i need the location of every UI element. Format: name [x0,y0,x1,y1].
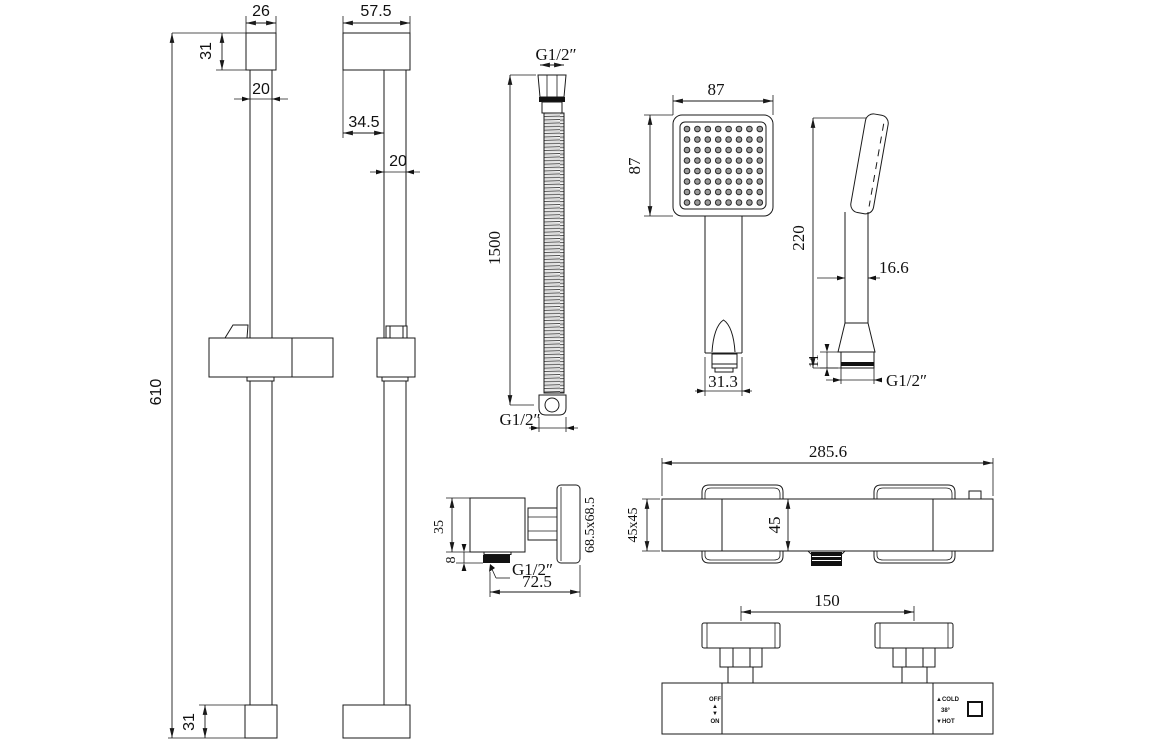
dim-label-handle-width: 31.3 [708,372,738,391]
dim-label-grip-width: 16.6 [879,258,909,277]
rail-top-cap-front [246,33,276,70]
nozzle-dot [736,168,742,174]
handle-taper-side [838,323,875,352]
dim-label-elbow-depth: 72.5 [522,572,552,591]
slide-rail-front-view: 26 31 20 610 31 [148,3,333,738]
dim-label-elbow-nut-height: 8 [444,557,459,564]
handset-head-side [849,113,889,215]
nozzle-dot [736,126,742,132]
nozzle-dot [726,126,732,132]
temp-hot-label: ▼HOT [936,719,955,725]
nozzle-dot [715,137,721,143]
hose-top-collar [542,102,562,113]
nozzle-dot [715,189,721,195]
nozzle-dot [726,147,732,153]
elbow-body [470,498,525,552]
flow-down-arrow: ▼ [712,711,718,717]
dim-label-rail-wall-offset: 34.5 [348,114,379,131]
flow-off-label: OFF [709,697,721,703]
dim-label-face-width: 87 [708,80,726,99]
valve-right-handle-top-outline [874,485,955,499]
slider-lever-front [225,325,248,338]
dim-label-hose-bottom-thread: G1/2″ [499,410,540,429]
dim-label-rail-bottom-cap-height: 31 [181,713,198,731]
handset-front-view: 87 87 31.3 [625,80,773,396]
valve-left-handle-top-outline [702,485,783,499]
valve-top-view: 285.6 45x45 45 [626,442,993,566]
nozzle-dot [757,137,763,143]
nozzle-dot [757,158,763,164]
dim-label-valve-body-depth: 45 [765,517,784,534]
nozzle-dot [684,147,690,153]
shower-hose-view: G1/2″ 1500 G1/2″ [485,45,578,432]
valve-right-handle-front [875,623,953,648]
dim-label-face-height: 87 [625,157,644,175]
nozzle-dot [747,158,753,164]
nozzle-dot [726,200,732,206]
nozzle-dot [747,137,753,143]
nozzle-dot [705,179,711,185]
dim-label-rail-total-height: 610 [148,379,165,406]
nozzle-dot [736,200,742,206]
temp-38-label: 38° [941,708,951,714]
nozzle-dot [736,189,742,195]
slide-rail-side-view: 57.5 34.5 20 [343,3,420,738]
elbow-wall-plate [557,485,580,563]
nozzle-dot [695,147,701,153]
nozzle-dot [757,200,763,206]
dim-label-rail-cap-height: 31 [198,42,215,60]
hose-top-nut [538,75,566,97]
dim-label-handset-thread: G1/2″ [886,371,927,390]
nozzle-dot [705,147,711,153]
nozzle-dot [695,179,701,185]
hose-corrugation [544,113,564,393]
nozzle-dot [726,189,732,195]
nozzle-dot [695,126,701,132]
nozzle-dot [684,179,690,185]
dim-label-elbow-body-height: 35 [432,520,447,534]
nozzle-dot [757,179,763,185]
nozzle-dot [747,200,753,206]
nozzle-dot [684,168,690,174]
nozzle-dot [695,189,701,195]
nozzle-dot [715,168,721,174]
nozzle-dot [684,200,690,206]
valve-right-inlet-neck [902,667,927,683]
dim-label-valve-width: 285.6 [809,442,847,461]
nozzle-dot [726,168,732,174]
valve-bar-top [662,499,993,551]
nozzle-dot [715,126,721,132]
temp-override-button [968,702,982,716]
nozzle-dot [736,158,742,164]
elbow-neck [484,552,511,555]
temp-cold-label: ▲COLD [936,697,960,703]
dim-label-handset-height: 220 [789,225,808,251]
dim-label-nut-height: 11 [807,354,822,367]
nozzle-dot [684,126,690,132]
nozzle-dot [747,189,753,195]
nozzle-dot [747,126,753,132]
dim-label-rail-tube-width-front: 20 [252,81,270,98]
nozzle-dot [715,147,721,153]
nozzle-dot [715,200,721,206]
handle-seal-band-side [841,362,874,366]
dim-label-rail-side-cap-width: 57.5 [360,3,391,20]
valve-left-hex-nut [720,648,762,667]
valve-front-view: OFF ▲ ▼ ON ▲COLD 38° ▼HOT 150 [662,591,993,734]
nozzle-dot [747,147,753,153]
dim-label-rail-cap-width: 26 [252,3,270,20]
rail-bottom-cap-side [343,705,410,738]
flow-on-label: ON [711,719,720,725]
valve-left-inlet-neck [728,667,753,683]
dim-label-hose-length: 1500 [485,231,504,265]
technical-drawing-canvas: 26 31 20 610 31 57.5 34.5 20 [0,0,1156,742]
nozzle-dot [695,168,701,174]
dim-label-elbow-plate-size: 68.5x68.5 [583,497,598,553]
nozzle-dot [747,179,753,185]
nozzle-dot [695,200,701,206]
slider-neck-front [247,377,274,381]
nozzle-dot [757,168,763,174]
valve-right-hex-nut [893,648,935,667]
handle-nut-front [712,354,737,368]
elbow-thread-nut [483,555,510,563]
nozzle-dot [705,168,711,174]
slider-neck-side [382,377,408,381]
slider-bracket-front [209,338,333,377]
technical-drawing-page: 26 31 20 610 31 57.5 34.5 20 [0,0,1156,742]
rail-bottom-cap-front [245,705,277,738]
elbow-hex-connector [528,508,557,540]
nozzle-dot [695,158,701,164]
hose-top-seal-band [539,97,565,102]
dim-label-hose-top-thread: G1/2″ [535,45,576,64]
nozzle-dot [736,137,742,143]
nozzle-dot [736,179,742,185]
nozzle-dot [715,179,721,185]
nozzle-dot [757,147,763,153]
nozzle-dot [705,137,711,143]
nozzle-dot [705,126,711,132]
dim-label-inlet-spacing: 150 [814,591,840,610]
nozzle-dot [705,158,711,164]
nozzle-dot [757,189,763,195]
handset-side-view: 220 16.6 11 G1/2″ [789,113,927,390]
nozzle-dot [695,137,701,143]
nozzle-dot [684,158,690,164]
nozzle-dot [736,147,742,153]
dim-label-rail-tube-width-side: 20 [389,153,407,170]
nozzle-dot [705,189,711,195]
valve-outlet-connector [811,552,842,566]
handle-cone-detail [712,320,735,352]
wall-outlet-elbow-view: 35 8 G1/2″ 72.5 68.5x68.5 [432,485,598,597]
flow-up-arrow: ▲ [712,704,718,710]
valve-top-button-detail [969,491,981,499]
valve-left-handle-front [702,623,780,648]
rail-top-cap-side [343,33,410,70]
nozzle-dot [726,158,732,164]
nozzle-dot [757,126,763,132]
nozzle-dot [726,179,732,185]
nozzle-dot [705,200,711,206]
nozzle-dot [684,137,690,143]
nozzle-dot [715,158,721,164]
rail-tube-front [250,70,272,705]
nozzle-dot [684,189,690,195]
slider-bracket-side [377,338,415,377]
nozzle-dot [726,137,732,143]
nozzle-dot [747,168,753,174]
slider-lever-side [386,326,407,338]
dim-label-valve-body-section: 45x45 [626,508,641,543]
